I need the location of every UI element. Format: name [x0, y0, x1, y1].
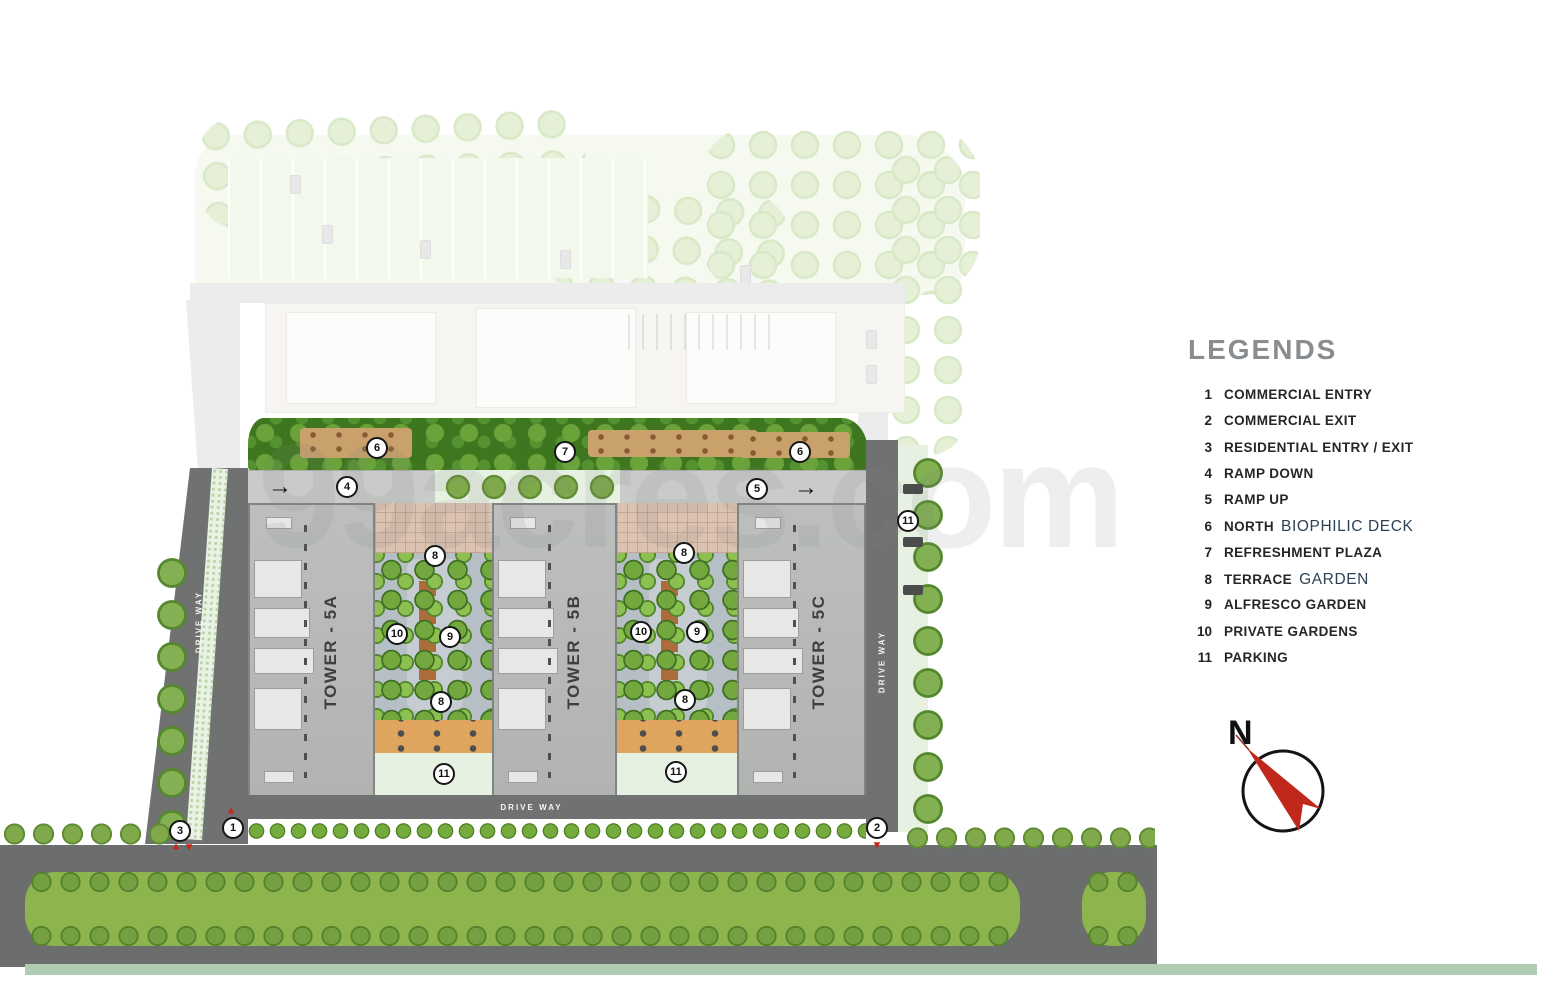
legend-label: RESIDENTIAL ENTRY / EXIT — [1224, 440, 1413, 455]
legend-item-1: 1COMMERCIAL ENTRY — [1188, 387, 1518, 413]
compass-north-label: N — [1228, 714, 1253, 753]
tower-5a-label: TOWER - 5A — [321, 594, 341, 709]
faded-parked-car — [290, 175, 301, 194]
legend-item-11: 11PARKING — [1188, 650, 1518, 676]
tower-5b-label: TOWER - 5B — [564, 594, 584, 709]
legend-number: 4 — [1188, 466, 1212, 481]
boundary-trees-left — [148, 552, 196, 847]
legend-number: 3 — [1188, 440, 1212, 455]
legend-item-10: 10PRIVATE GARDENS — [1188, 624, 1518, 650]
faded-parked-car — [866, 330, 877, 349]
legend-label: REFRESHMENT PLAZA — [1224, 545, 1382, 560]
legend-label-alt: GARDEN — [1299, 571, 1369, 589]
road-median-hedge-2 — [1082, 872, 1146, 946]
legend-number: 11 — [1188, 650, 1212, 665]
tower-5c-label: TOWER - 5C — [809, 594, 829, 709]
legend-number: 8 — [1188, 572, 1212, 587]
legend-list: 1COMMERCIAL ENTRY2COMMERCIAL EXIT3RESIDE… — [1188, 387, 1518, 676]
legend-label: ALFRESCO GARDEN — [1224, 597, 1367, 612]
legend-item-7: 7REFRESHMENT PLAZA — [1188, 545, 1518, 571]
faded-parked-car — [322, 225, 333, 244]
legend-label: RAMP DOWN — [1224, 466, 1314, 481]
legend-number: 2 — [1188, 413, 1212, 428]
legend-item-4: 4RAMP DOWN — [1188, 466, 1518, 492]
seating-band — [375, 720, 492, 753]
faded-parked-car — [560, 250, 571, 269]
legend-label: COMMERCIAL EXIT — [1224, 413, 1357, 428]
legend-number: 10 — [1188, 624, 1212, 639]
watermark: 99acres.com — [258, 412, 1122, 582]
parked-car — [903, 484, 923, 494]
legend-item-8: 8TERRACEGARDEN — [1188, 571, 1518, 597]
legend-label: COMMERCIAL ENTRY — [1224, 387, 1372, 402]
compass: N — [1222, 710, 1352, 850]
site-plan-page: 99acres.com TOWER - 5A TOWER - 5B — [0, 0, 1554, 1006]
legend-label: TERRACE — [1224, 572, 1292, 587]
legends-panel: LEGENDS 1COMMERCIAL ENTRY2COMMERCIAL EXI… — [1188, 334, 1518, 676]
road-tree-row-left — [0, 818, 172, 852]
seating-band — [617, 720, 737, 753]
parked-car — [903, 537, 923, 547]
road-median-hedge — [25, 872, 1020, 946]
parking-hatch — [375, 753, 492, 800]
legends-title: LEGENDS — [1188, 334, 1518, 366]
legend-label: PRIVATE GARDENS — [1224, 624, 1358, 639]
faded-parked-car — [866, 365, 877, 384]
driveway-bottom: DRIVE WAY — [195, 795, 868, 819]
legend-number: 6 — [1188, 519, 1212, 534]
legend-item-9: 9ALFRESCO GARDEN — [1188, 597, 1518, 623]
road-edge-strip — [25, 964, 1537, 975]
legend-number: 5 — [1188, 492, 1212, 507]
legend-number: 9 — [1188, 597, 1212, 612]
legend-label: NORTH — [1224, 519, 1274, 534]
legend-number: 7 — [1188, 545, 1212, 560]
legend-label: PARKING — [1224, 650, 1288, 665]
faded-parked-car — [420, 240, 431, 259]
legend-item-5: 5RAMP UP — [1188, 492, 1518, 518]
driveway-right-label: DRIVE WAY — [878, 631, 887, 693]
driveway-left-label-2: DRIVE WAY — [229, 659, 238, 721]
legend-label: RAMP UP — [1224, 492, 1289, 507]
hedge-row-front — [246, 819, 866, 844]
driveway-left-label: DRIVE WAY — [195, 591, 204, 653]
legend-item-6: 6NORTHBIOPHILIC DECK — [1188, 518, 1518, 544]
road-tree-row-right — [903, 822, 1155, 856]
driveway-bottom-label: DRIVE WAY — [500, 803, 562, 812]
faded-neighbour-plot — [0, 0, 1160, 480]
legend-item-3: 3RESIDENTIAL ENTRY / EXIT — [1188, 440, 1518, 466]
parked-car — [903, 585, 923, 595]
faded-road-left — [186, 300, 240, 470]
legend-item-2: 2COMMERCIAL EXIT — [1188, 413, 1518, 439]
legend-number: 1 — [1188, 387, 1212, 402]
faded-pool — [628, 314, 778, 350]
parking-hatch — [617, 753, 737, 800]
faded-clubhouse — [265, 303, 905, 413]
faded-parked-car — [740, 265, 751, 284]
faded-road-horizontal — [190, 283, 905, 303]
legend-label-alt: BIOPHILIC DECK — [1281, 518, 1413, 536]
